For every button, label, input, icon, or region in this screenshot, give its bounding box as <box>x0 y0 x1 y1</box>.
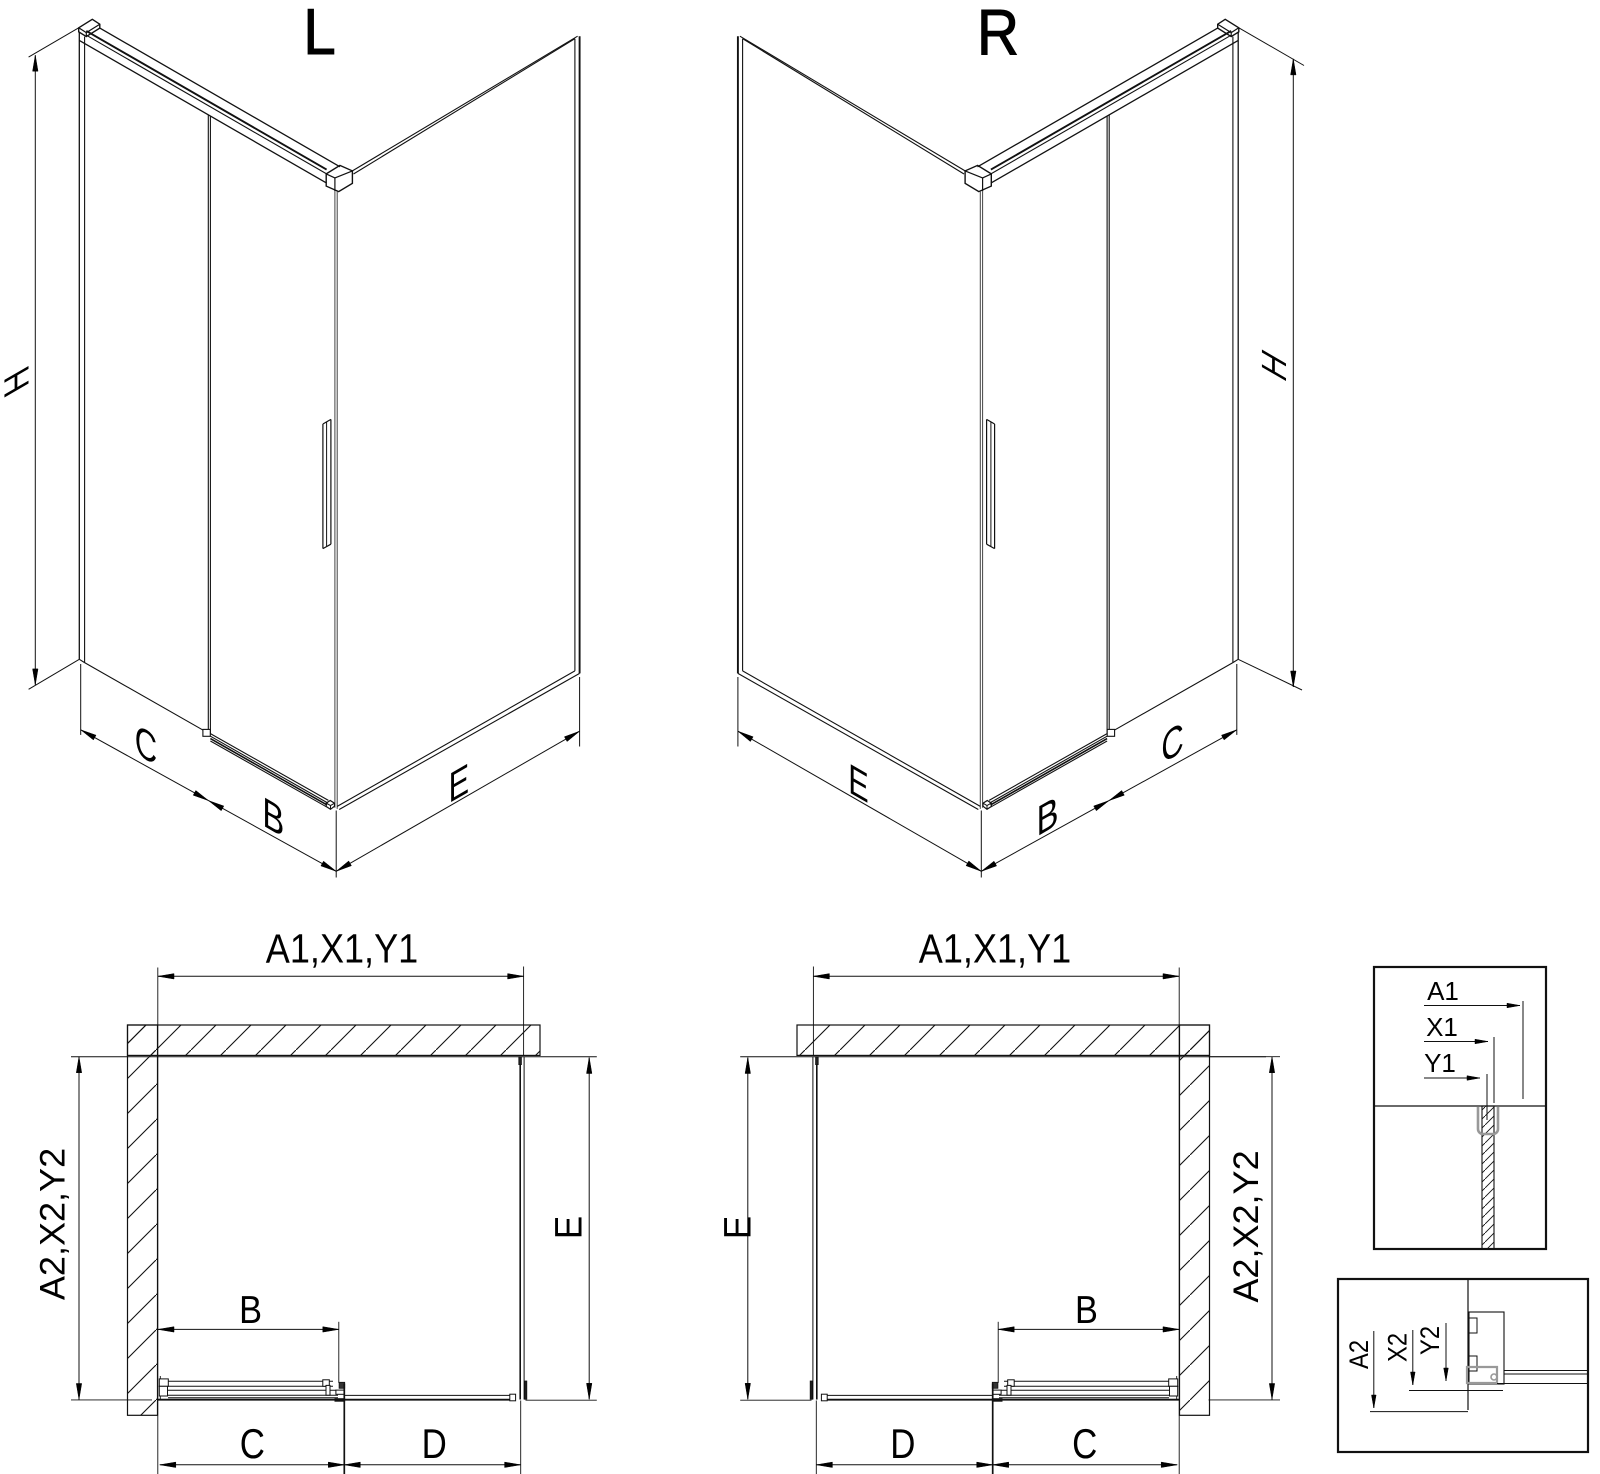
svg-text:R: R <box>977 0 1019 69</box>
svg-text:L: L <box>303 0 336 69</box>
svg-text:E: E <box>716 1216 759 1239</box>
svg-text:A1,X1,Y1: A1,X1,Y1 <box>266 926 418 972</box>
svg-text:Y2: Y2 <box>1416 1326 1446 1355</box>
svg-text:B: B <box>239 1288 262 1332</box>
svg-text:X1: X1 <box>1426 1012 1458 1042</box>
svg-text:C: C <box>240 1421 265 1468</box>
svg-text:Y1: Y1 <box>1424 1048 1456 1078</box>
svg-text:X2: X2 <box>1383 1333 1413 1362</box>
svg-text:A2: A2 <box>1345 1340 1375 1369</box>
svg-text:B: B <box>1075 1288 1098 1332</box>
svg-text:A2,X2,Y2: A2,X2,Y2 <box>33 1148 72 1300</box>
svg-text:D: D <box>422 1421 447 1468</box>
svg-text:E: E <box>547 1216 590 1239</box>
svg-text:D: D <box>890 1421 915 1468</box>
svg-text:C: C <box>1072 1421 1097 1468</box>
svg-text:A2,X2,Y2: A2,X2,Y2 <box>1227 1150 1266 1302</box>
svg-text:A1: A1 <box>1427 976 1459 1006</box>
svg-text:A1,X1,Y1: A1,X1,Y1 <box>919 926 1071 972</box>
